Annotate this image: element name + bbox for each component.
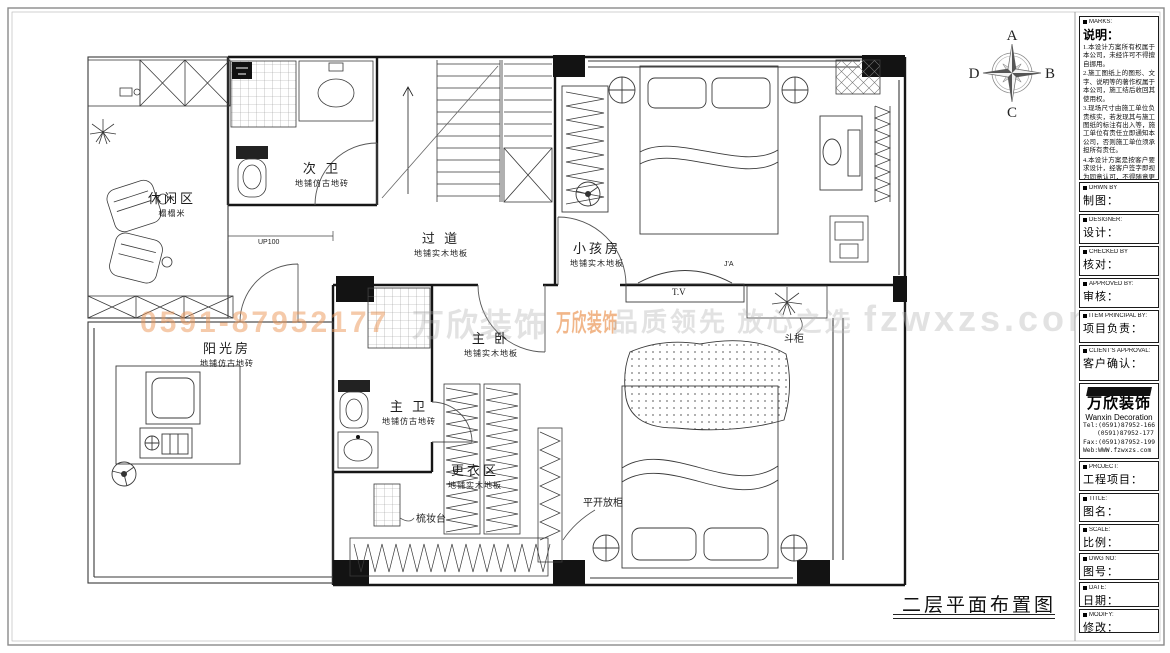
company-tel-1: Tel:(0591)87952-166	[1083, 422, 1155, 431]
room-label-leisure: 休闲区 榻榻米	[148, 188, 196, 219]
field-label: 设计：	[1083, 224, 1155, 240]
field-tag: CLIENT'S APPROVAL:	[1089, 348, 1150, 354]
section-bullet-icon	[1083, 497, 1087, 501]
field-client-approval: CLIENT'S APPROVAL: 客户确认：	[1079, 345, 1159, 381]
field-tag: DATE:	[1089, 585, 1106, 591]
floorplan-drawing: A B C D	[0, 0, 1170, 653]
compass-east-label: B	[1045, 66, 1055, 82]
field-scale: SCALE: 比例：	[1079, 524, 1159, 551]
drawing-title: 二层平面布置图	[902, 590, 1056, 617]
field-label: 客户确认：	[1083, 355, 1155, 371]
section-bullet-icon	[1083, 528, 1087, 532]
field-modify: MODIFY: 修改：	[1079, 609, 1159, 633]
compass-south-label: C	[1007, 105, 1017, 121]
sunroom-furniture	[112, 366, 240, 486]
field-label: 项目负责：	[1083, 320, 1155, 336]
field-tag: TITLE:	[1089, 496, 1107, 502]
field-dwg-no: DWG NO: 图号：	[1079, 553, 1159, 580]
floorplan-sheet: { "plan": { "rooms": [ {"name":"休闲区","su…	[0, 0, 1170, 653]
compass-icon: A B C D	[969, 28, 1055, 121]
field-designer: DESIGNER: 设计：	[1079, 214, 1159, 244]
plant-box	[747, 286, 827, 334]
master-bathroom	[338, 288, 430, 468]
company-tel-2: (0591)87952-177	[1083, 430, 1155, 439]
field-item-principal: ITEM PRINCIPAL BY: 项目负责：	[1079, 310, 1159, 343]
room-name: 小孩房	[570, 238, 624, 257]
section-bullet-icon	[1083, 282, 1087, 286]
room-name: 更衣区	[448, 460, 502, 479]
field-approved-by: APPROVED BY: 审核：	[1079, 278, 1159, 308]
field-label: 核对：	[1083, 256, 1155, 272]
field-tag: CHECKED BY	[1089, 249, 1128, 255]
field-label: 工程项目：	[1083, 471, 1155, 487]
field-date: DATE: 日期：	[1079, 582, 1159, 607]
field-title: TITLE: 图名：	[1079, 493, 1159, 522]
title-underline-1	[893, 614, 1055, 615]
section-bullet-icon	[1083, 349, 1087, 353]
room-floor-note: 地铺仿古地砖	[382, 416, 436, 427]
field-tag: PROJECT:	[1089, 464, 1118, 470]
company-fax: Fax:(0591)87952-199	[1083, 439, 1155, 448]
stair-up-label: UP100	[258, 239, 279, 246]
master-bed	[593, 341, 807, 568]
room-floor-note: 榻榻米	[148, 208, 196, 219]
corridor-dim-line	[228, 231, 333, 241]
room-floor-note: 地铺仿古地砖	[295, 178, 349, 189]
room-floor-note: 地铺实木地板	[448, 480, 502, 491]
company-name-en: Wanxin Decoration	[1083, 413, 1155, 422]
field-tag: DWG NO:	[1089, 556, 1116, 562]
note-item: 2.施工图纸上的图形、文字、说明等的著作权属于本公司，施工结后收回其使用权。	[1083, 70, 1155, 104]
compass-north-label: A	[1007, 28, 1018, 44]
section-bullet-icon	[1083, 218, 1087, 222]
room-name: 阳光房	[200, 338, 254, 357]
chest-label: 斗柜	[784, 330, 804, 345]
section-bullet-icon	[1083, 314, 1087, 318]
section-bullet-icon	[1083, 613, 1087, 617]
section-bullet-icon	[1083, 250, 1087, 254]
room-label-kids: 小孩房 地铺实木地板	[570, 238, 624, 269]
field-label: 日期：	[1083, 592, 1155, 607]
room-floor-note: 地铺实木地板	[570, 258, 624, 269]
field-checked-by: CHECKED BY 核对：	[1079, 246, 1159, 276]
field-drawn-by: DRWN BY 制图：	[1079, 182, 1159, 212]
field-tag: DESIGNER:	[1089, 217, 1122, 223]
section-bullet-icon	[1083, 186, 1087, 190]
room-name: 主 卫	[382, 396, 436, 415]
notes-tag: MARKS:	[1089, 19, 1112, 25]
room-label-master: 主 卧 地铺实木地板	[464, 328, 518, 359]
field-project: PROJECT: 工程项目：	[1079, 461, 1159, 491]
vanity-label: 梳妆台	[416, 510, 446, 525]
room-floor-note: 地铺实木地板	[464, 348, 518, 359]
room-floor-note: 地铺仿古地砖	[200, 358, 254, 369]
room-label-sunroom: 阳光房 地铺仿古地砖	[200, 338, 254, 369]
room-label-corridor: 过 道 地铺实木地板	[414, 228, 468, 259]
field-label: 审核：	[1083, 288, 1155, 304]
room-name: 主 卧	[464, 328, 518, 347]
room-floor-note: 地铺实木地板	[414, 248, 468, 259]
company-web: Web:WWW.fzwxzs.com	[1083, 447, 1155, 456]
sheet-frame	[8, 8, 1164, 645]
tv-label: T.V	[672, 287, 686, 297]
room-name: 过 道	[414, 228, 468, 247]
field-label: 比例：	[1083, 534, 1155, 550]
note-item: 3.现场尺寸由施工单位负责核实，若发现其与施工图纸的标注有出入等，施工单位有责任…	[1083, 105, 1155, 156]
compass-west-label: D	[969, 66, 980, 82]
staircase	[382, 60, 552, 202]
field-label: 制图：	[1083, 192, 1155, 208]
company-logo-text: 万欣装饰	[1083, 396, 1155, 413]
section-bullet-icon	[1083, 557, 1087, 561]
note-item: 1.本设计方案所有权属于本公司，未经许可不得擅自挪用。	[1083, 44, 1155, 69]
field-label: 图号：	[1083, 563, 1155, 579]
notes-heading: 说明：	[1083, 26, 1155, 43]
company-logo-icon	[1086, 387, 1152, 396]
room-label-dressing: 更衣区 地铺实木地板	[448, 460, 502, 491]
company-box: 万欣装饰 Wanxin Decoration Tel:(0591)87952-1…	[1079, 383, 1159, 459]
field-tag: DRWN BY	[1089, 185, 1117, 191]
door-tag-label: J'A	[724, 261, 734, 268]
section-bullet-icon	[1083, 20, 1087, 24]
walls	[228, 57, 905, 585]
room-label-secondary-bath: 次 卫 地铺仿古地砖	[295, 158, 349, 189]
field-tag: MODIFY:	[1089, 612, 1114, 618]
field-tag: APPROVED BY:	[1089, 281, 1133, 287]
field-tag: SCALE:	[1089, 527, 1110, 533]
note-item: 4.本设计方案是按客户要求设计，经客户签字即视为同意认可，不得随意更改。	[1083, 157, 1155, 180]
notes-box: MARKS: 说明： 1.本设计方案所有权属于本公司，未经许可不得擅自挪用。 2…	[1079, 16, 1159, 180]
room-name: 休闲区	[148, 188, 196, 207]
kids-room-furniture	[562, 66, 862, 234]
cabinet-label: 平开放柜	[583, 494, 623, 509]
room-label-master-bath: 主 卫 地铺仿古地砖	[382, 396, 436, 427]
section-bullet-icon	[1083, 465, 1087, 469]
title-underline-2	[893, 618, 1055, 619]
field-label: 图名：	[1083, 503, 1155, 519]
room-name: 次 卫	[295, 158, 349, 177]
field-tag: ITEM PRINCIPAL BY:	[1089, 313, 1147, 319]
field-label: 修改：	[1083, 619, 1155, 633]
section-bullet-icon	[1083, 586, 1087, 590]
